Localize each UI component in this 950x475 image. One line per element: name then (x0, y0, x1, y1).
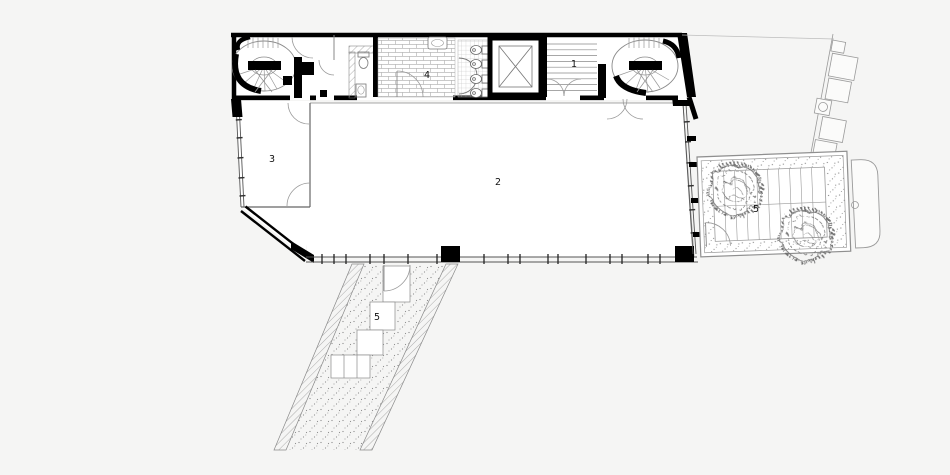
floor-plan-canvas: 1 2 3 4 5 5 (0, 0, 950, 475)
room-label-1: 1 (571, 59, 577, 70)
floor-plan: 1 2 3 4 5 5 (0, 0, 950, 475)
room-label-4: 4 (424, 70, 430, 81)
column (675, 246, 694, 262)
terrace-deck (713, 167, 828, 241)
elevator (490, 38, 541, 95)
sink (428, 37, 447, 49)
toilet-row (458, 40, 489, 98)
room-label-3: 3 (269, 154, 275, 165)
room-label-5-terrace: 5 (753, 204, 759, 215)
front-room (231, 99, 310, 207)
bathroom-room (378, 37, 455, 97)
room-label-2: 2 (495, 177, 501, 188)
column (441, 246, 460, 262)
room-label-5-ramp: 5 (374, 312, 380, 323)
